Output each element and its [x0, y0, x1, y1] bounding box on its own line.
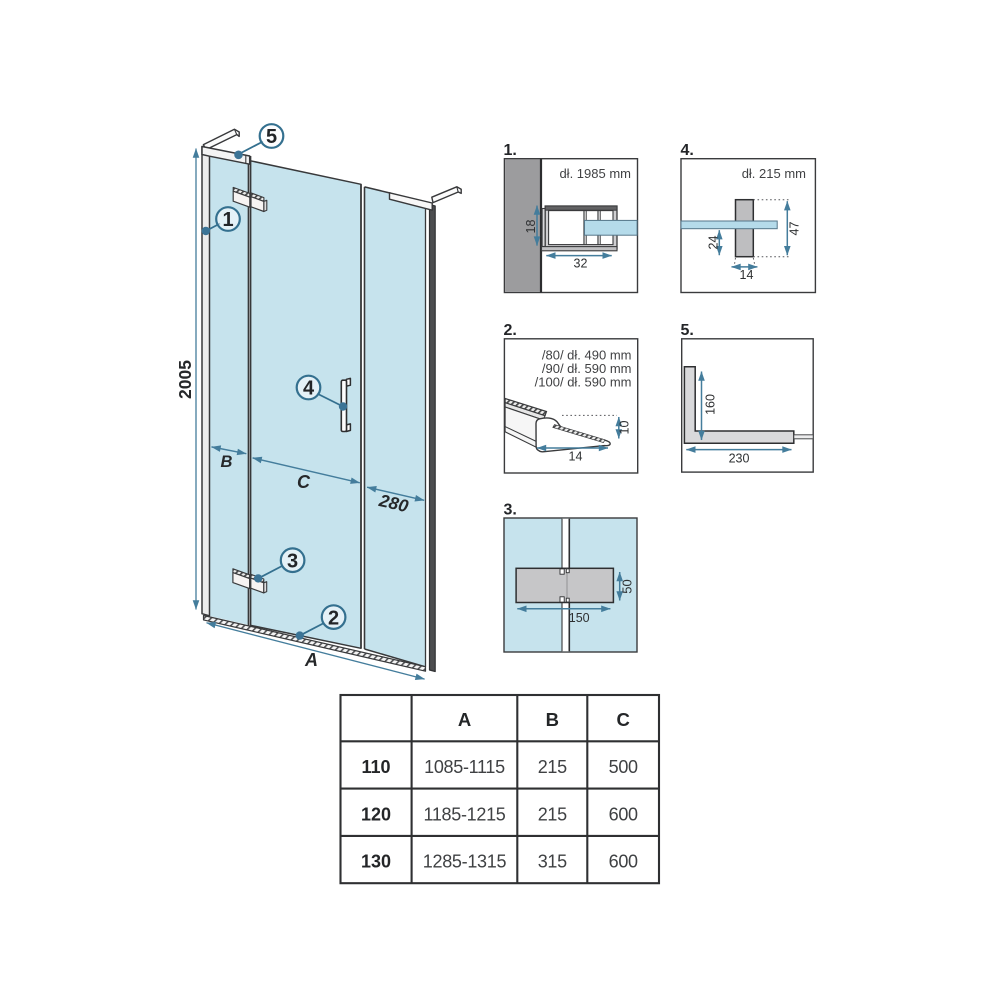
- svg-text:24: 24: [707, 236, 721, 250]
- svg-text:1.: 1.: [504, 142, 517, 159]
- svg-text:3.: 3.: [504, 502, 517, 519]
- svg-text:120: 120: [361, 805, 391, 825]
- svg-text:B: B: [221, 453, 233, 471]
- svg-text:dł. 1985 mm: dł. 1985 mm: [559, 166, 631, 181]
- svg-text:1185-1215: 1185-1215: [423, 805, 505, 825]
- svg-text:32: 32: [574, 257, 588, 271]
- svg-text:10: 10: [618, 421, 632, 435]
- svg-text:4.: 4.: [681, 142, 694, 159]
- svg-text:150: 150: [569, 611, 590, 625]
- svg-text:1085-1115: 1085-1115: [424, 757, 505, 777]
- svg-text:1: 1: [222, 209, 233, 231]
- svg-text:5.: 5.: [681, 322, 694, 339]
- svg-text:215: 215: [538, 805, 567, 825]
- svg-text:/100/ dł. 590 mm: /100/ dł. 590 mm: [535, 375, 632, 390]
- svg-text:C: C: [297, 472, 311, 492]
- svg-text:B: B: [546, 709, 559, 730]
- svg-text:500: 500: [609, 757, 638, 777]
- svg-text:2.: 2.: [504, 322, 517, 339]
- svg-text:130: 130: [361, 852, 391, 872]
- svg-text:600: 600: [609, 805, 638, 825]
- svg-text:dł. 215 mm: dł. 215 mm: [742, 166, 806, 181]
- svg-text:1285-1315: 1285-1315: [423, 852, 507, 872]
- svg-text:110: 110: [361, 757, 390, 777]
- svg-text:215: 215: [538, 757, 567, 777]
- svg-text:5: 5: [266, 126, 277, 148]
- svg-text:2005: 2005: [175, 360, 195, 399]
- svg-text:2: 2: [328, 607, 339, 629]
- svg-text:14: 14: [569, 450, 583, 464]
- svg-text:A: A: [304, 650, 318, 670]
- svg-text:A: A: [458, 709, 471, 730]
- svg-text:4: 4: [303, 378, 315, 400]
- svg-text:600: 600: [609, 852, 638, 872]
- svg-text:315: 315: [538, 852, 567, 872]
- svg-text:47: 47: [788, 222, 802, 236]
- svg-text:14: 14: [740, 268, 754, 282]
- svg-text:C: C: [617, 709, 630, 730]
- svg-text:230: 230: [729, 452, 750, 466]
- svg-text:160: 160: [704, 394, 718, 415]
- svg-text:18: 18: [524, 220, 538, 234]
- svg-text:3: 3: [287, 550, 298, 572]
- svg-text:50: 50: [620, 579, 635, 593]
